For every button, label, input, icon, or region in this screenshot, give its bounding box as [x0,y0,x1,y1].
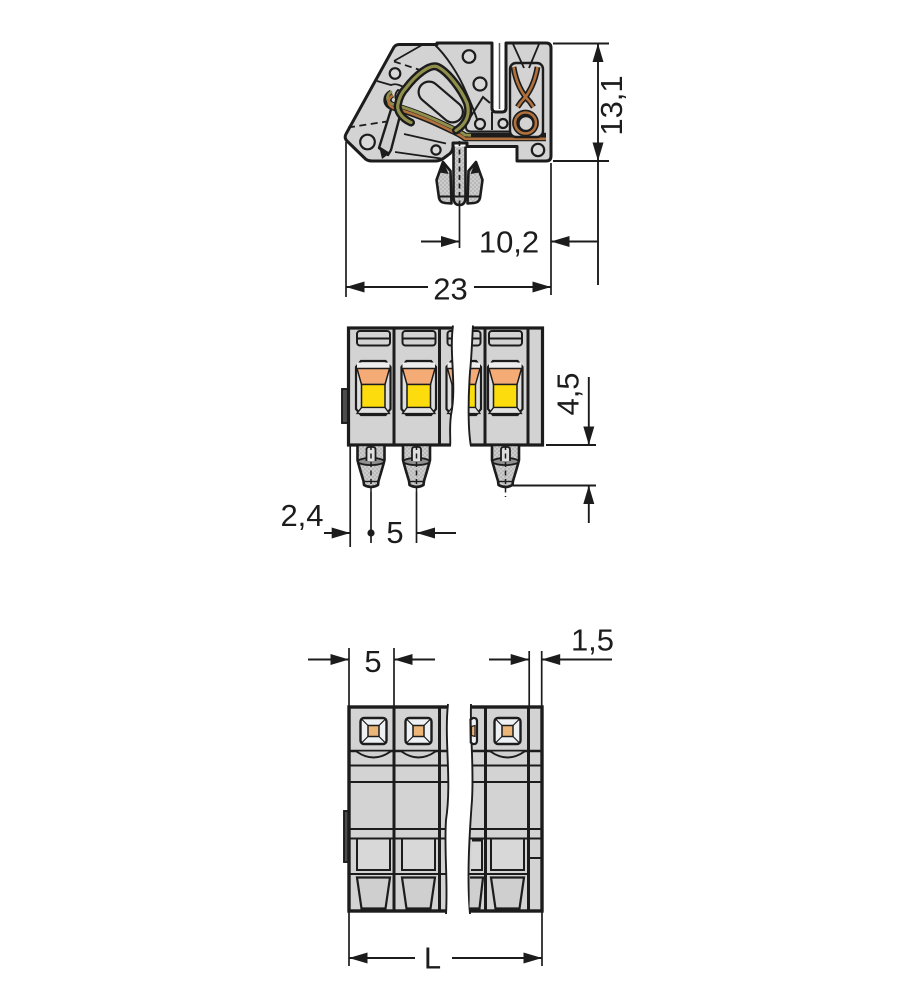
svg-text:2,4: 2,4 [280,498,323,533]
svg-text:5: 5 [364,644,381,679]
svg-text:10,2: 10,2 [479,225,539,260]
svg-text:4,5: 4,5 [551,372,586,415]
svg-text:5: 5 [386,515,403,550]
svg-text:13,1: 13,1 [594,75,629,135]
svg-text:L: L [424,941,441,976]
svg-text:23: 23 [433,272,467,307]
svg-text:1,5: 1,5 [571,623,614,658]
